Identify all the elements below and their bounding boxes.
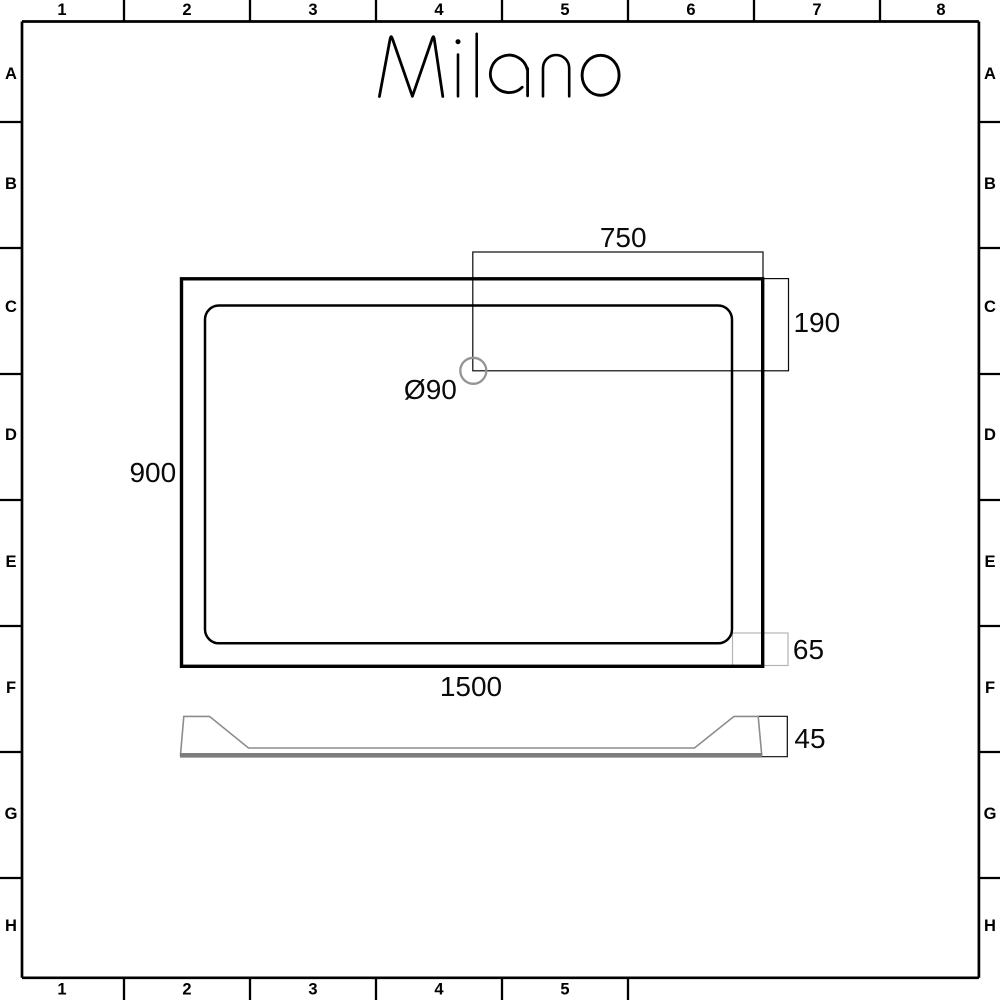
svg-text:6: 6 <box>686 1 695 19</box>
svg-text:1: 1 <box>57 981 66 999</box>
svg-text:E: E <box>5 553 16 571</box>
svg-text:G: G <box>984 805 997 823</box>
svg-text:5: 5 <box>560 981 569 999</box>
svg-text:4: 4 <box>434 981 444 999</box>
svg-text:7: 7 <box>812 1 821 19</box>
svg-text:H: H <box>984 917 996 935</box>
svg-text:5: 5 <box>560 1 569 19</box>
svg-text:750: 750 <box>600 222 647 253</box>
svg-text:190: 190 <box>793 307 840 338</box>
svg-text:2: 2 <box>182 1 191 19</box>
svg-text:45: 45 <box>794 723 825 754</box>
svg-text:H: H <box>5 917 17 935</box>
svg-text:3: 3 <box>308 1 317 19</box>
svg-text:C: C <box>5 298 17 316</box>
svg-text:1500: 1500 <box>440 671 502 702</box>
svg-text:F: F <box>985 679 995 697</box>
svg-text:2: 2 <box>182 981 191 999</box>
svg-text:8: 8 <box>936 1 945 19</box>
svg-text:B: B <box>984 175 996 193</box>
svg-text:D: D <box>984 426 996 444</box>
svg-text:4: 4 <box>434 1 444 19</box>
svg-text:D: D <box>5 426 17 444</box>
svg-text:F: F <box>6 679 16 697</box>
svg-text:C: C <box>984 298 996 316</box>
svg-text:A: A <box>5 65 17 83</box>
svg-text:A: A <box>984 65 996 83</box>
svg-text:3: 3 <box>308 981 317 999</box>
svg-text:B: B <box>5 175 17 193</box>
svg-text:65: 65 <box>793 634 824 665</box>
svg-text:G: G <box>5 805 18 823</box>
svg-text:E: E <box>984 553 995 571</box>
svg-text:1: 1 <box>57 1 66 19</box>
svg-text:900: 900 <box>129 457 176 488</box>
svg-text:Ø90: Ø90 <box>404 374 457 405</box>
